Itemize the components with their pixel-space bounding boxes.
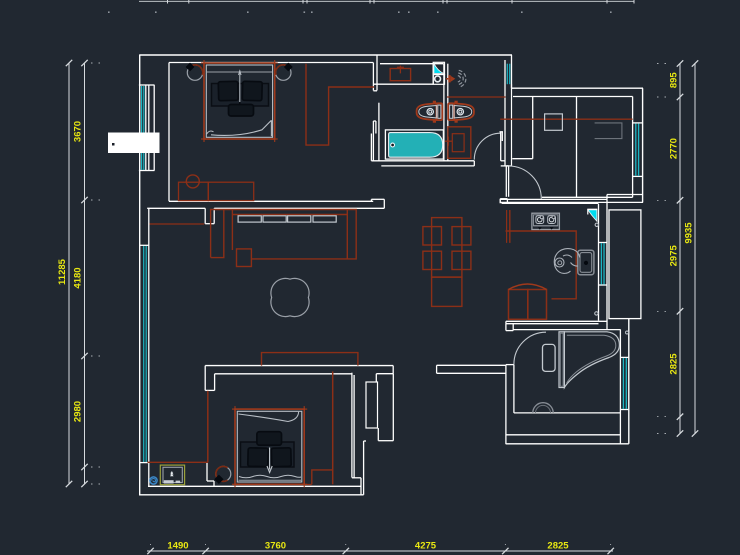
- svg-text:2975: 2975: [669, 245, 680, 267]
- svg-text:4275: 4275: [415, 541, 437, 552]
- svg-text:1490: 1490: [167, 541, 188, 552]
- svg-text:3670: 3670: [73, 121, 84, 142]
- svg-text:895: 895: [669, 72, 680, 89]
- svg-text:11285: 11285: [57, 258, 68, 285]
- svg-text:2770: 2770: [669, 138, 680, 159]
- svg-text:9935: 9935: [684, 222, 695, 244]
- svg-text:2825: 2825: [547, 541, 569, 552]
- svg-text:4180: 4180: [73, 267, 84, 288]
- svg-text:3760: 3760: [265, 541, 286, 552]
- svg-text:2980: 2980: [73, 401, 84, 422]
- svg-text:2825: 2825: [669, 353, 680, 375]
